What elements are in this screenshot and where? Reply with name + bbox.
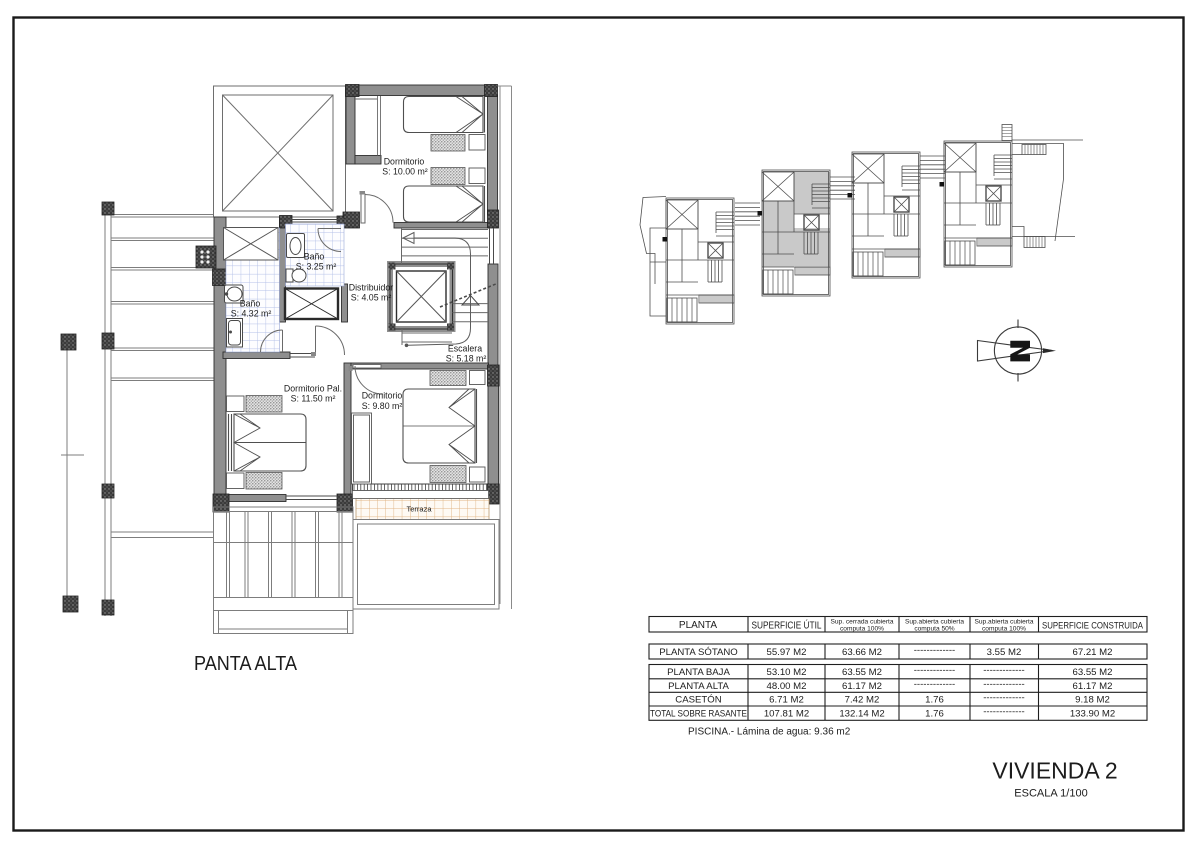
- svg-text:7.42 M2: 7.42 M2: [845, 695, 880, 706]
- svg-text:67.21 M2: 67.21 M2: [1072, 647, 1112, 658]
- svg-text:61.17 M2: 61.17 M2: [1072, 681, 1112, 692]
- svg-text:63.66 M2: 63.66 M2: [842, 647, 882, 658]
- svg-text:computa 50%: computa 50%: [914, 626, 954, 633]
- svg-text:1.76: 1.76: [925, 695, 944, 706]
- svg-text:S: 10.00 m²: S: 10.00 m²: [382, 167, 428, 177]
- svg-text:9.18 M2: 9.18 M2: [1075, 695, 1110, 706]
- svg-text:Sup.abierta cubierta: Sup.abierta cubierta: [905, 619, 964, 626]
- svg-text:Dormitorio: Dormitorio: [384, 157, 425, 167]
- svg-text:61.17 M2: 61.17 M2: [842, 681, 882, 692]
- svg-text:132.14 M2: 132.14 M2: [839, 709, 884, 720]
- svg-text:-------------: -------------: [983, 665, 1025, 676]
- svg-text:PISCINA.- Lámina de agua: 9.36: PISCINA.- Lámina de agua: 9.36 m2: [688, 727, 851, 738]
- svg-text:133.90 M2: 133.90 M2: [1070, 709, 1115, 720]
- svg-text:63.55 M2: 63.55 M2: [842, 667, 882, 678]
- svg-text:63.55 M2: 63.55 M2: [1072, 667, 1112, 678]
- svg-text:Dormitorio Pal.: Dormitorio Pal.: [284, 384, 342, 394]
- svg-text:S: 3.25 m²: S: 3.25 m²: [296, 262, 337, 272]
- svg-text:VIVIENDA 2: VIVIENDA 2: [992, 758, 1117, 784]
- svg-text:Sup. cerrada cubierta: Sup. cerrada cubierta: [830, 619, 893, 626]
- svg-text:PLANTA SÓTANO: PLANTA SÓTANO: [659, 647, 738, 658]
- svg-text:48.00 M2: 48.00 M2: [766, 681, 806, 692]
- svg-text:3.55 M2: 3.55 M2: [987, 647, 1022, 658]
- svg-text:S: 9.80 m²: S: 9.80 m²: [362, 401, 403, 411]
- svg-text:Escalera: Escalera: [448, 344, 482, 354]
- svg-text:-------------: -------------: [914, 645, 956, 656]
- svg-text:55.97 M2: 55.97 M2: [766, 647, 806, 658]
- svg-text:ESCALA 1/100: ESCALA 1/100: [1014, 788, 1087, 800]
- svg-text:computa 100%: computa 100%: [840, 626, 884, 633]
- svg-text:1.76: 1.76: [925, 709, 944, 720]
- svg-text:107.81 M2: 107.81 M2: [764, 709, 809, 720]
- svg-text:-------------: -------------: [914, 665, 956, 676]
- svg-text:S: 4.32 m²: S: 4.32 m²: [231, 309, 272, 319]
- svg-text:PLANTA BAJA: PLANTA BAJA: [667, 667, 730, 678]
- svg-text:S: 5.18 m²: S: 5.18 m²: [446, 354, 487, 364]
- svg-text:S: 4.05 m²: S: 4.05 m²: [351, 293, 392, 303]
- svg-text:SUPERFICIE ÚTIL: SUPERFICIE ÚTIL: [752, 619, 822, 632]
- svg-text:Terraza: Terraza: [406, 505, 432, 514]
- svg-text:PLANTA: PLANTA: [679, 620, 717, 631]
- svg-text:PANTA ALTA: PANTA ALTA: [194, 652, 297, 675]
- svg-text:53.10 M2: 53.10 M2: [766, 667, 806, 678]
- svg-text:Dormitorio: Dormitorio: [362, 391, 403, 401]
- svg-text:computa 100%: computa 100%: [982, 626, 1026, 633]
- svg-text:Baño: Baño: [304, 252, 325, 262]
- svg-text:PLANTA ALTA: PLANTA ALTA: [668, 681, 729, 692]
- svg-text:Baño: Baño: [240, 299, 261, 309]
- svg-text:CASETÓN: CASETÓN: [675, 695, 721, 706]
- svg-text:-------------: -------------: [983, 707, 1025, 718]
- svg-text:Distribuidor: Distribuidor: [349, 283, 394, 293]
- svg-text:-------------: -------------: [914, 679, 956, 690]
- svg-text:6.71 M2: 6.71 M2: [769, 695, 804, 706]
- svg-text:-------------: -------------: [983, 693, 1025, 704]
- svg-text:Sup.abierta cubierta: Sup.abierta cubierta: [974, 619, 1033, 626]
- svg-text:-------------: -------------: [983, 679, 1025, 690]
- svg-text:S: 11.50 m²: S: 11.50 m²: [291, 394, 336, 404]
- svg-text:TOTAL SOBRE RASANTE: TOTAL SOBRE RASANTE: [650, 709, 747, 720]
- svg-text:SUPERFICIE CONSTRUIDA: SUPERFICIE CONSTRUIDA: [1042, 621, 1144, 631]
